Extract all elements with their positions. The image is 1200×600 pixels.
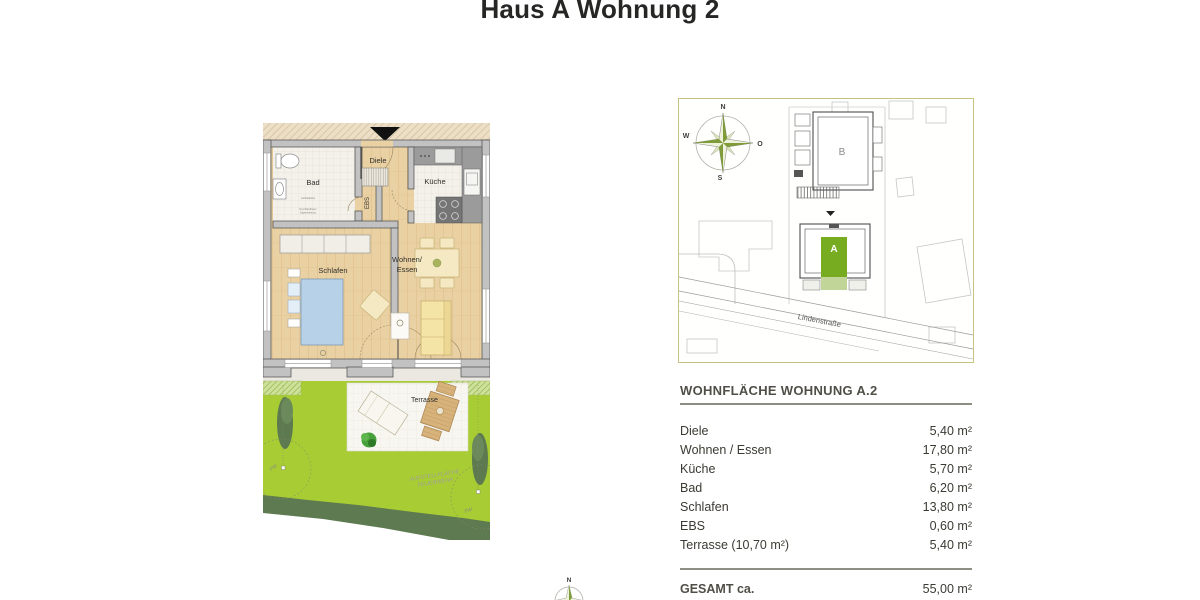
- room-label-wohnen: Wohnen/: [392, 255, 423, 264]
- terrace-highlight: [821, 277, 847, 290]
- compass-north-label: N: [720, 104, 725, 111]
- coffee-table-icon: [391, 313, 409, 339]
- room-area: 6,20 m²: [930, 479, 972, 498]
- total-label: GESAMT ca.: [680, 580, 754, 599]
- total-area: 55,00 m²: [923, 580, 972, 599]
- closet-icon: [280, 235, 370, 253]
- room-area: 5,40 m²: [930, 536, 972, 555]
- room-name: Terrasse (10,70 m²): [680, 536, 789, 555]
- stove-icon: [436, 197, 462, 223]
- room-name: Diele: [680, 422, 709, 441]
- bottom-compass: N: [544, 572, 594, 600]
- room-label-diele: Diele: [369, 156, 386, 165]
- room-name: Schlafen: [680, 498, 729, 517]
- toilet-icon: [276, 154, 299, 168]
- tree-icon: [472, 433, 488, 485]
- room-label-schlafen: Schlafen: [318, 266, 347, 275]
- building-b: B: [794, 112, 882, 190]
- room-area: 5,70 m²: [930, 460, 972, 479]
- room-label-kueche: Küche: [424, 177, 445, 186]
- room-label-terrasse: Terrasse: [411, 397, 438, 404]
- room-name: Wohnen / Essen: [680, 441, 772, 460]
- room-area: 5,40 m²: [930, 422, 972, 441]
- garden: FW FW AUFSTELLFLÄCHE FEUERWEHR Terrasse: [263, 367, 490, 540]
- room-name: Bad: [680, 479, 702, 498]
- kitchen-sink-icon: [464, 169, 480, 195]
- entrance-arrow-icon: [826, 211, 835, 216]
- svg-text:Aufstellplatz: Aufstellplatz: [301, 196, 316, 200]
- page: Haus A Wohnung 2: [0, 0, 1200, 600]
- room-label-ebs: EBS: [365, 197, 371, 209]
- sofa-icon: [421, 301, 451, 355]
- svg-text:Eigenleistung: Eigenleistung: [300, 211, 316, 215]
- compass-east-label: O: [757, 141, 763, 148]
- area-table: WOHNFLÄCHE WOHNUNG A.2 Diele 5,40 m² Woh…: [680, 383, 972, 599]
- table-row: Diele 5,40 m²: [680, 422, 972, 441]
- apartment-highlight: [821, 237, 847, 277]
- table-rows: Diele 5,40 m² Wohnen / Essen 17,80 m² Kü…: [680, 422, 972, 555]
- compass-west-label: W: [683, 133, 690, 140]
- table-row: Wohnen / Essen 17,80 m²: [680, 441, 972, 460]
- room-label-bad: Bad: [306, 178, 319, 187]
- room-name: EBS: [680, 517, 705, 536]
- compass-south-label: S: [718, 175, 723, 182]
- table-row: Küche 5,70 m²: [680, 460, 972, 479]
- table-title: WOHNFLÄCHE WOHNUNG A.2: [680, 383, 972, 398]
- compass-rose-icon: N O S W: [683, 104, 764, 182]
- tree-icon: [277, 397, 293, 449]
- sink-icon: [273, 179, 286, 199]
- table-row: EBS 0,60 m²: [680, 517, 972, 536]
- room-name: Küche: [680, 460, 715, 479]
- planting-bed-left: [263, 381, 301, 395]
- compass-north-label: N: [567, 577, 572, 584]
- building-b-label: B: [839, 147, 846, 158]
- table-total-row: GESAMT ca. 55,00 m²: [680, 580, 972, 599]
- room-area: 17,80 m²: [923, 441, 972, 460]
- room-area: 0,60 m²: [930, 517, 972, 536]
- table-row: Schlafen 13,80 m²: [680, 498, 972, 517]
- site-plan: N O S W B: [678, 98, 974, 363]
- wardrobe-icon: [362, 168, 388, 186]
- room-label-essen: Essen: [397, 265, 418, 274]
- table-row: Bad 6,20 m²: [680, 479, 972, 498]
- apartment: Aufstellplatz Durchlaufbarer Eigenleistu…: [263, 123, 490, 377]
- divider: [680, 568, 972, 570]
- street-label: Lindenstraße: [797, 312, 842, 329]
- building-a-label: A: [830, 244, 837, 255]
- building-a: A: [800, 224, 870, 290]
- divider: [680, 403, 972, 405]
- north-arrow-icon: N: [553, 577, 585, 600]
- page-title: Haus A Wohnung 2: [0, 0, 1200, 25]
- svg-text:Durchlaufbarer: Durchlaufbarer: [299, 207, 316, 211]
- room-area: 13,80 m²: [923, 498, 972, 517]
- table-row: Terrasse (10,70 m²) 5,40 m²: [680, 536, 972, 555]
- stairs-icon: [797, 187, 839, 198]
- floor-plan: FW FW AUFSTELLFLÄCHE FEUERWEHR Terrasse: [263, 123, 490, 540]
